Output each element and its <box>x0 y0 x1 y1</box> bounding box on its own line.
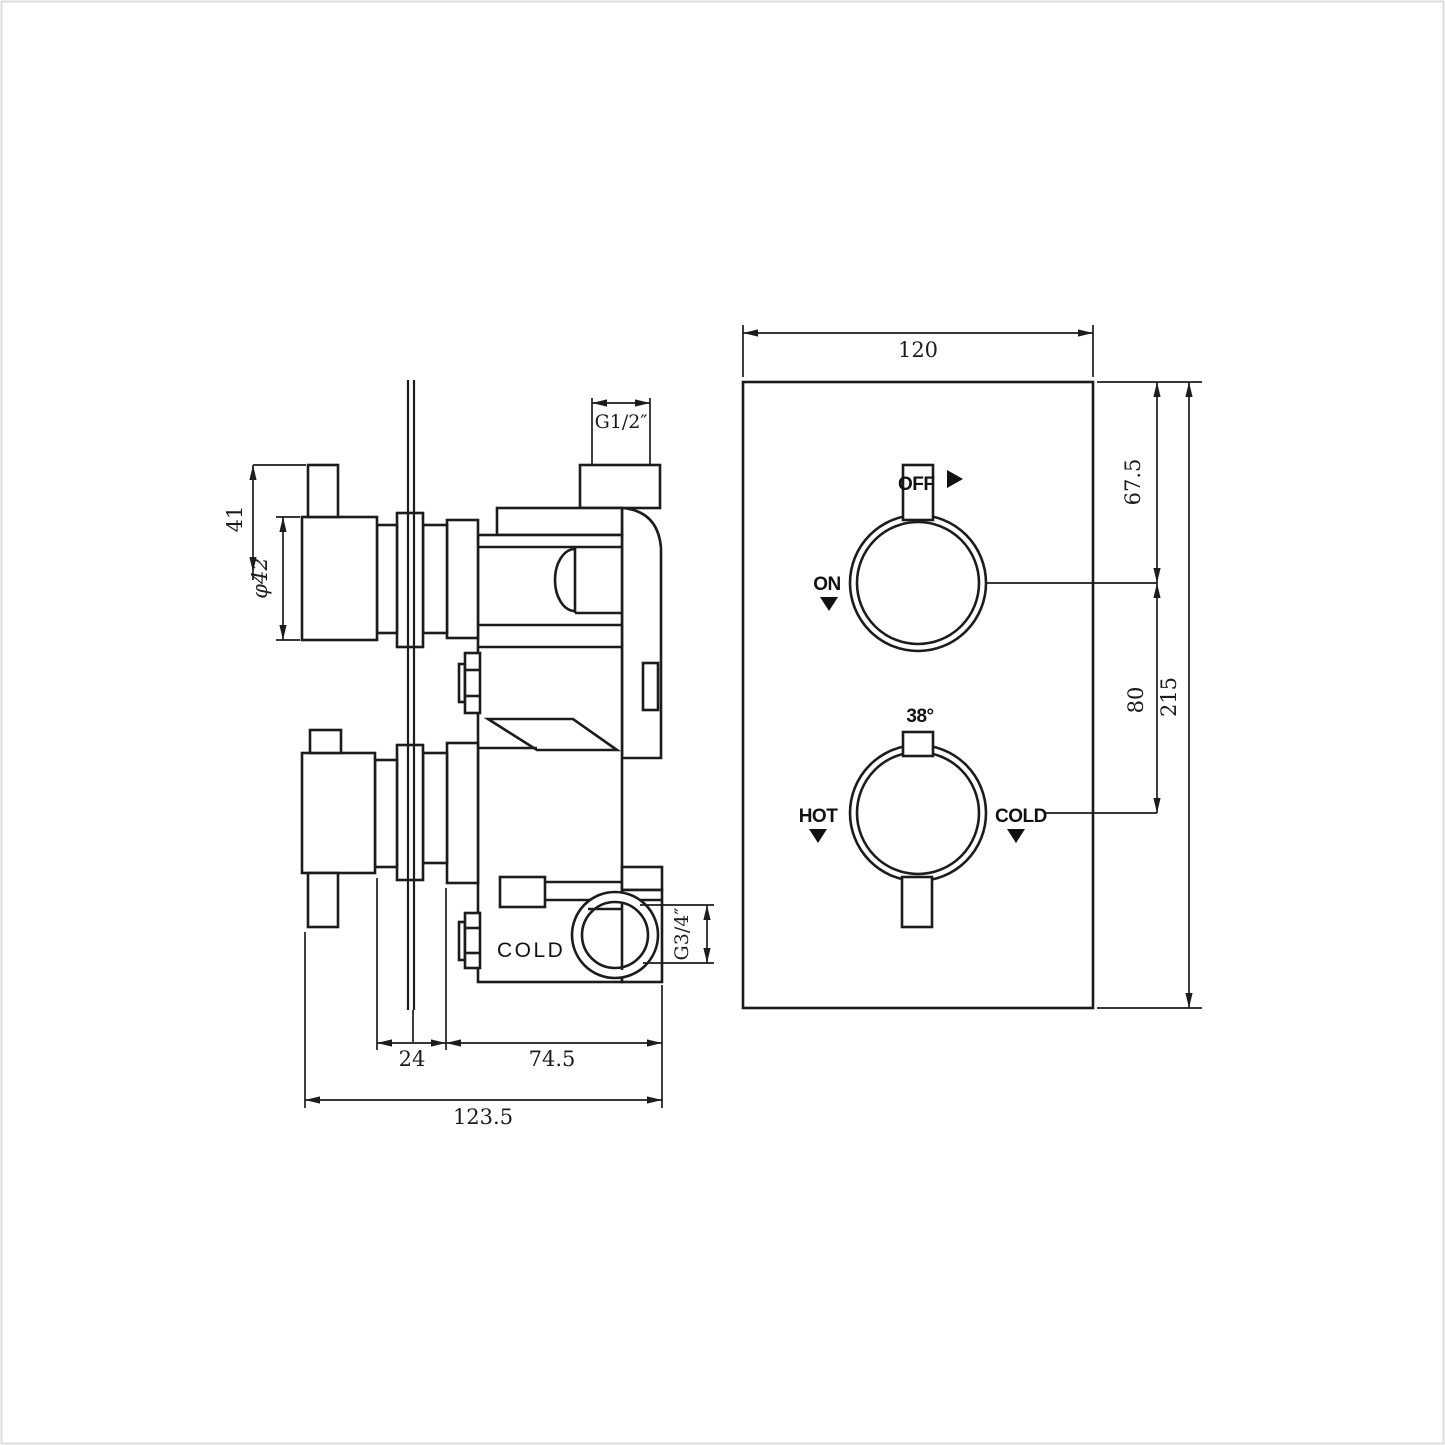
hex-fitting <box>465 913 480 968</box>
dim-outlet-thread-text: G1/2″ <box>595 411 648 433</box>
dim-24-text: 24 <box>399 1047 426 1071</box>
cold-port-step <box>622 867 662 890</box>
escutcheon-collar <box>397 745 423 880</box>
dim-67-5-text: 67.5 <box>1121 459 1145 506</box>
elbow-notch <box>643 663 658 710</box>
cartridge-step <box>423 753 447 863</box>
bolt-fitting <box>500 877 545 907</box>
dim-215-text: 215 <box>1157 677 1181 717</box>
knob-outer-ring <box>850 745 986 881</box>
dim-inlet-thread-text: G3/4″ <box>671 908 693 961</box>
hot-label: HOT <box>799 806 839 827</box>
knob-body <box>302 753 375 873</box>
off-label: OFF <box>898 474 935 495</box>
knob-body <box>302 517 377 640</box>
side-view: COLD <box>223 380 714 1129</box>
dim-outlet-thread: G1/2″ <box>592 398 650 465</box>
faceplate-edge <box>408 380 414 1010</box>
cartridge <box>447 743 478 883</box>
knob-shaft <box>375 760 397 867</box>
knob-upper-side <box>302 465 478 647</box>
on-label: ON <box>813 574 841 595</box>
knob-lever-bottom <box>902 877 932 927</box>
dim-plate-width: 120 <box>743 325 1093 377</box>
dim-heights: 67.5 80 215 <box>1097 382 1202 1008</box>
dim-80-text: 80 <box>1124 687 1148 714</box>
cartridge-step <box>423 525 447 633</box>
cartridge <box>447 520 478 638</box>
dim-diameter-text: φ42 <box>248 557 272 598</box>
elbow-pipe <box>622 508 661 758</box>
image-border <box>2 2 1444 1444</box>
dim-123-5-text: 123.5 <box>453 1105 513 1129</box>
outlet-pipe <box>580 465 660 508</box>
hex-fitting <box>465 653 480 713</box>
knob-handle-bottom <box>308 873 338 927</box>
knob-lever-top <box>903 732 933 756</box>
knob-handle-top <box>310 730 341 753</box>
knob-outer-ring <box>850 515 986 651</box>
cold-port-label: COLD <box>497 939 565 962</box>
dim-120-text: 120 <box>898 338 938 362</box>
body-top-flange <box>497 508 622 535</box>
dim-74-5-text: 74.5 <box>529 1047 576 1071</box>
temperature-label: 38° <box>906 706 933 727</box>
dim-knob-diameter: φ42 <box>248 517 300 640</box>
front-view: OFF ON 38° HOT COLD 120 <box>743 325 1202 1008</box>
cold-label: COLD <box>995 806 1047 827</box>
technical-drawing-page: COLD <box>0 0 1445 1445</box>
shower-valve-technical-drawing: COLD <box>0 0 1445 1445</box>
knob-shaft <box>377 525 397 633</box>
knob-lower-side <box>302 730 478 927</box>
escutcheon-collar <box>397 513 423 647</box>
dim-41-text: 41 <box>223 506 247 533</box>
knob-handle <box>308 465 338 517</box>
